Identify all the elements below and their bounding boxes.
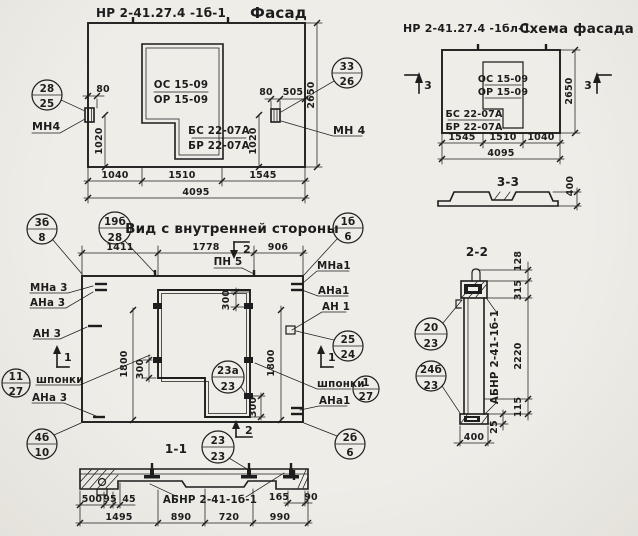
callout-1-27-sheet: 27: [359, 391, 374, 403]
label-an1: АН 1: [322, 301, 350, 313]
callout-3b-8-sheet: 8: [38, 232, 45, 244]
facade-anchor-right: [271, 109, 280, 122]
section-2-2-label: 2-2: [466, 245, 488, 259]
section-3-3: 3-3 400: [438, 175, 581, 210]
facade-view: НР 2-41.27.4 -1б-1 Фасад ОС 15-09 ОР 15-…: [32, 4, 366, 203]
dim-505: 505: [283, 87, 303, 98]
inner-opening-dimensions: 300 300 300 1800 1800: [119, 288, 284, 423]
callout-20-23-sheet: 23: [424, 338, 439, 350]
dim-45: 45: [122, 494, 136, 505]
schema-view: НР 2-41.27.4 -1бл-1 Схема фасада ОС 15-0…: [403, 21, 634, 210]
label-mna3: МНа 3: [30, 282, 68, 294]
section-mark-3-right-label: 3: [584, 79, 592, 92]
dim-890: 890: [171, 512, 192, 523]
callout-3b-8-num: 3б: [35, 217, 50, 229]
facade-dimensions: 80 1020 80 505 2650 1020 1040 1510 1545: [83, 20, 322, 203]
callout-11-27-num: 11: [9, 371, 24, 383]
section-1-1-label: 1-1: [165, 442, 187, 456]
section-mark-3-left-label: 3: [424, 79, 432, 92]
callout-11-27-sheet: 27: [9, 386, 24, 398]
callout-23a-23-num: 23а: [217, 365, 239, 377]
dim-1510: 1510: [168, 170, 195, 181]
dim-115: 115: [513, 397, 524, 417]
dim-2650-schema: 2650: [564, 77, 575, 104]
dim-1020-left: 1020: [94, 127, 105, 154]
section-mark-1-left: 1: [53, 345, 72, 367]
callout-2b-6-sheet: 6: [346, 447, 353, 459]
callout-33-26-num: 33: [340, 61, 355, 73]
dim-300-left: 300: [135, 359, 146, 380]
dim-1510-schema: 1510: [489, 132, 516, 143]
section-2-2: 2-2 АБНР 2-41-1б-1 128 315 2220 115 25: [415, 245, 532, 446]
dim-80-right: 80: [259, 87, 273, 98]
facade-anchor-right-label: МН 4: [333, 124, 366, 137]
callout-28-25: 28 25: [32, 80, 85, 111]
callout-25-24-num: 25: [341, 334, 356, 346]
callout-20-23: 20 23: [415, 300, 462, 350]
dim-400-section22: 400: [464, 432, 485, 443]
dim-128: 128: [513, 251, 524, 272]
engineering-drawing: НР 2-41.27.4 -1б-1 Фасад ОС 15-09 ОР 15-…: [0, 0, 638, 536]
dim-906: 906: [268, 242, 289, 253]
dim-1411: 1411: [106, 242, 133, 253]
dim-2220: 2220: [513, 342, 524, 369]
dim-1495: 1495: [105, 512, 132, 523]
dim-300-top: 300: [221, 290, 232, 311]
dim-25: 25: [489, 420, 500, 434]
label-ana1: АНа1: [318, 285, 350, 297]
callout-33-26-sheet: 26: [340, 76, 355, 88]
facade-sill-mark-bottom: БР 22-07А: [188, 140, 250, 152]
dim-1800-right: 1800: [266, 349, 277, 376]
section-mark-3-right: 3: [584, 72, 611, 93]
schema-title-name: Схема фасада: [519, 21, 634, 37]
callout-23-23-sheet: 23: [211, 451, 226, 463]
section-2-2-lifting-loop: [472, 269, 480, 281]
section-mark-1-left-label: 1: [64, 351, 72, 364]
label-shponki-left: шпонки: [36, 374, 84, 386]
dim-1040: 1040: [101, 170, 128, 181]
dim-720: 720: [219, 512, 240, 523]
label-an3: АН 3: [33, 328, 61, 340]
label-ana3: АНа 3: [30, 297, 65, 309]
callout-4b-10-sheet: 10: [35, 447, 50, 459]
callout-24b-23: 24б 23: [416, 361, 460, 413]
callout-2b-6: 2б 6: [304, 423, 365, 459]
callout-1-27-num: 1: [362, 377, 369, 389]
callout-24b-23-sheet: 23: [424, 380, 439, 392]
label-ana1-second: АНа1: [319, 395, 351, 407]
section-1-1: 1-1 АБНР 2-41-1б-1 500 95 45 165 90: [76, 442, 318, 526]
dim-1040-schema: 1040: [527, 132, 554, 143]
inner-panel-outline: [82, 276, 303, 422]
callout-23a-23-sheet: 23: [221, 381, 236, 393]
callout-25-24-sheet: 24: [341, 349, 356, 361]
section-2-2-part-mark: АБНР 2-41-1б-1: [489, 310, 501, 404]
facade-title-code: НР 2-41.27.4 -1б-1: [96, 6, 226, 20]
label-ana3-second: АНа 3: [32, 392, 67, 404]
callout-3b-8: 3б 8: [27, 214, 82, 274]
section-mark-1-right-label: 1: [328, 351, 336, 364]
section-mark-2-top-label: 2: [243, 243, 251, 256]
schema-title-code: НР 2-41.27.4 -1бл-1: [403, 22, 531, 35]
inner-top-dimensions: 1411 1778 906: [78, 242, 307, 276]
section-mark-3-left: 3: [405, 72, 432, 93]
dim-315: 315: [513, 280, 524, 300]
dim-1778: 1778: [192, 242, 219, 253]
callout-19b-28-num: 19б: [104, 216, 126, 228]
facade-title-name: Фасад: [250, 4, 307, 22]
drawing-sheet: НР 2-41.27.4 -1б-1 Фасад ОС 15-09 ОР 15-…: [0, 0, 638, 536]
dim-990: 990: [270, 512, 291, 523]
callout-20-23-num: 20: [424, 322, 439, 334]
schema-window-mark-top: ОС 15-09: [478, 74, 528, 85]
schema-sill-mark-top: БС 22-07А: [445, 109, 503, 120]
callout-28-25-sheet: 25: [40, 98, 55, 110]
callout-11-27: 11 27: [2, 369, 30, 398]
section-mark-2-bottom-label: 2: [245, 424, 253, 437]
label-mna1: МНа1: [317, 260, 351, 272]
pn5-label: ПН 5: [214, 256, 243, 268]
facade-anchor-left: [85, 108, 94, 122]
callout-2b-6-num: 2б: [343, 432, 358, 444]
callout-4b-10-num: 4б: [35, 432, 50, 444]
dim-1545: 1545: [249, 170, 276, 181]
dim-1020-right: 1020: [248, 127, 259, 154]
inner-view: Вид с внутренней стороны 3б 8 19б 28 141…: [2, 212, 379, 469]
callout-1b-6-num: 1б: [341, 216, 356, 228]
dim-1545-schema: 1545: [448, 132, 475, 143]
facade-sill-mark-top: БС 22-07А: [188, 125, 250, 137]
callout-24b-23-num: 24б: [420, 364, 442, 376]
schema-dimensions: 2650 1545 1510 1040 4095: [438, 47, 580, 164]
facade-window-mark-bottom: ОР 15-09: [154, 94, 208, 106]
section-3-3-label: 3-3: [497, 175, 519, 189]
dim-90: 90: [304, 492, 318, 503]
callout-1b-6-sheet: 6: [344, 231, 351, 243]
dim-80-left: 80: [96, 84, 110, 95]
dim-2650-facade: 2650: [306, 81, 317, 108]
dim-400-section33: 400: [565, 176, 576, 197]
callout-33-26: 33 26: [281, 58, 362, 112]
schema-window-mark-bottom: ОР 15-09: [478, 87, 528, 98]
inner-view-title: Вид с внутренней стороны: [125, 221, 339, 237]
callout-23-23-num: 23: [211, 435, 226, 447]
facade-window-mark-top: ОС 15-09: [154, 79, 208, 91]
section-1-1-part-mark: АБНР 2-41-1б-1: [163, 494, 257, 506]
callout-28-25-num: 28: [40, 83, 55, 95]
dim-500: 500: [82, 494, 103, 505]
facade-anchor-left-label: МН4: [32, 120, 61, 133]
dim-4095-facade: 4095: [182, 187, 209, 198]
callout-4b-10: 4б 10: [27, 423, 81, 459]
dim-4095-schema: 4095: [487, 148, 514, 159]
dim-165: 165: [269, 492, 289, 503]
dim-95: 95: [103, 494, 117, 505]
